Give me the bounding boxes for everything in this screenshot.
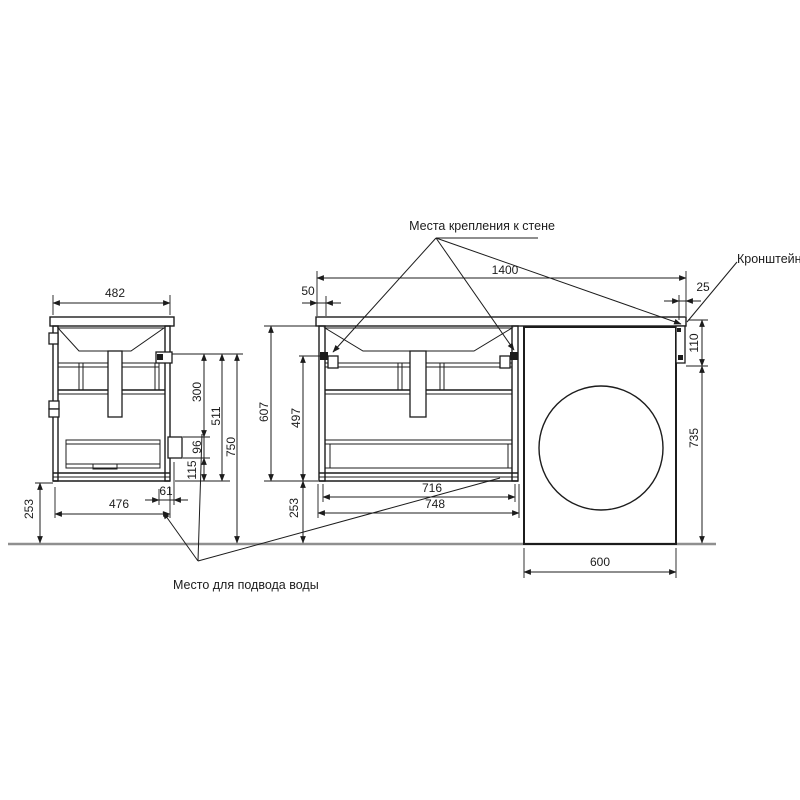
water-supply-label: Место для подвода воды <box>173 578 319 592</box>
dim-side-base-width: 476 <box>109 497 129 511</box>
side-wall-notch-bottom <box>49 401 59 409</box>
wall-mount-label: Места крепления к стене <box>409 219 555 233</box>
side-drain-pipe <box>108 351 122 417</box>
front-left-mount-bracket <box>320 352 338 368</box>
wall-mount-callout: Места крепления к стене <box>333 219 681 352</box>
front-view-dimensions: 1400 50 607 497 253 716 748 <box>257 263 686 543</box>
dim-inner-width: 716 <box>422 481 442 495</box>
dim-side-mount-to-bottom: 511 <box>209 406 223 425</box>
dim-side-mount-to-cutout: 300 <box>190 382 204 402</box>
front-left-wall <box>319 326 325 481</box>
front-countertop <box>316 317 686 326</box>
countertop-bracket <box>676 326 685 363</box>
dim-side-width: 482 <box>105 286 125 300</box>
dim-side-cutout-to-bottom: 115 <box>185 460 199 479</box>
dim-bracket-offset: 25 <box>696 280 710 294</box>
dim-side-back-offset: 61 <box>159 484 173 498</box>
side-water-cutout <box>168 437 182 458</box>
dim-bracket-height: 110 <box>687 333 701 352</box>
dim-side-floor-gap: 253 <box>22 499 36 519</box>
washer-body <box>524 327 676 544</box>
washer-zone-dimensions: 25 110 735 600 <box>524 280 710 578</box>
vanity-dimension-drawing: 482 253 476 61 300 96 115 511 <box>0 0 800 800</box>
dim-bracket-clearance: 735 <box>687 428 701 448</box>
washer-door <box>539 386 663 510</box>
front-sink-basin <box>325 328 512 351</box>
dim-front-mount-to-bottom: 497 <box>289 408 303 428</box>
dim-side-mount-height: 750 <box>224 437 238 457</box>
front-drain-pipe <box>410 351 426 417</box>
technical-drawing-canvas: 482 253 476 61 300 96 115 511 <box>0 0 800 800</box>
dim-cabinet-width: 748 <box>425 497 445 511</box>
dim-left-mount-offset: 50 <box>301 284 315 298</box>
front-view-cabinet <box>316 317 686 481</box>
dim-front-floor-gap: 253 <box>287 498 301 518</box>
front-right-mount-bracket <box>500 352 518 368</box>
side-sink-basin <box>58 328 164 351</box>
washing-machine <box>524 327 676 544</box>
side-wall-notch-top <box>49 333 58 344</box>
side-view-cabinet <box>49 317 182 481</box>
side-countertop <box>50 317 174 326</box>
dim-inner-height: 607 <box>257 402 271 422</box>
dim-washer-width: 600 <box>590 555 610 569</box>
bracket-label: Кронштейн <box>737 252 800 266</box>
